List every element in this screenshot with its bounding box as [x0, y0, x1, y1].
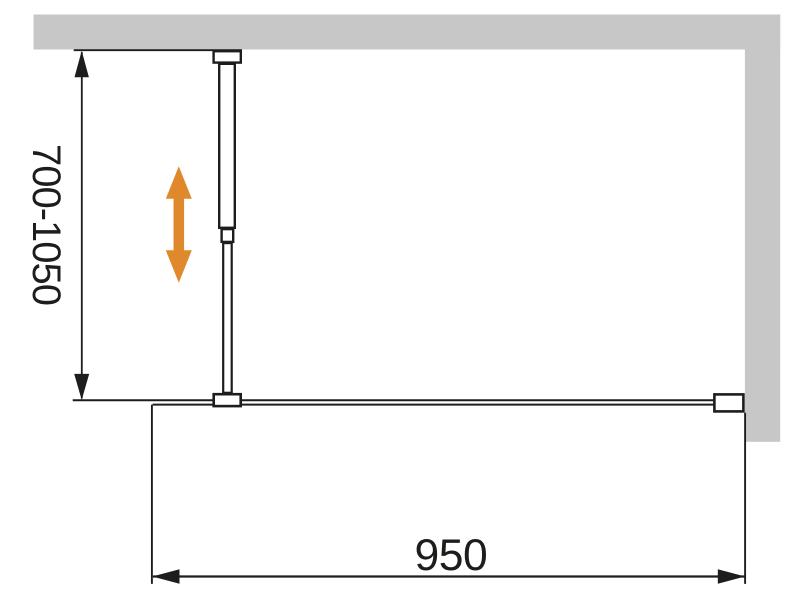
svg-text:700-1050: 700-1050 [24, 144, 68, 305]
svg-text:950: 950 [415, 531, 488, 580]
